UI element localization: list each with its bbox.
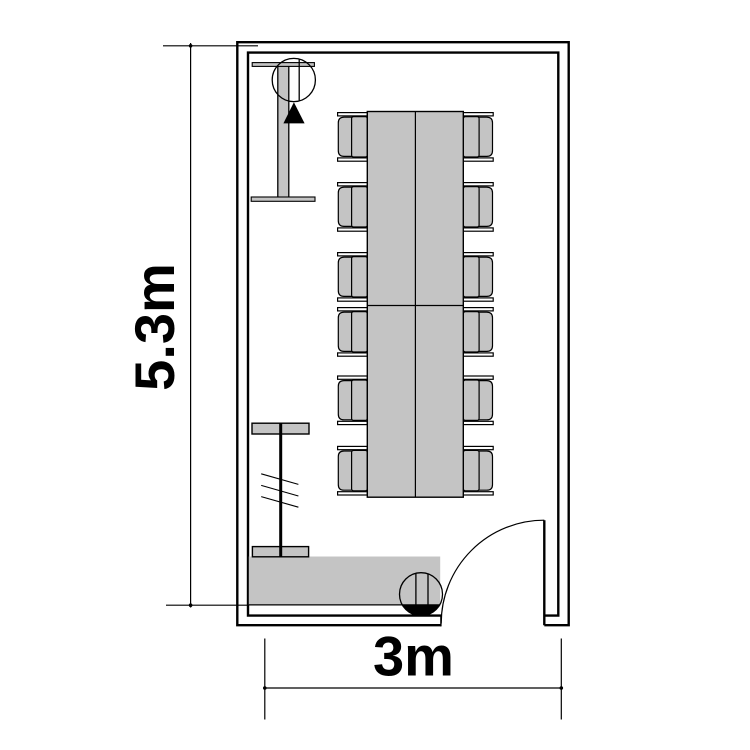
- svg-text:5.3m: 5.3m: [123, 263, 186, 391]
- svg-text:3m: 3m: [373, 625, 454, 688]
